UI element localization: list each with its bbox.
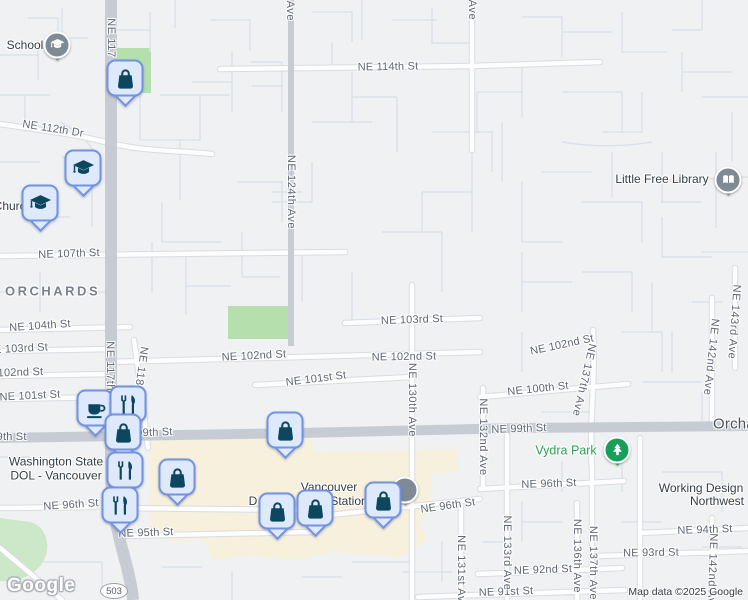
route-503-badge: 503 <box>100 583 128 599</box>
map-canvas[interactable]: NE 114th StNE 112th DrNE 107th StNE 104t… <box>0 0 748 600</box>
google-logo[interactable]: Google <box>7 575 75 597</box>
map-chrome-layer: 503 Google Map data ©2025 Google <box>0 0 748 600</box>
map-attribution: Map data ©2025 Google <box>628 586 743 598</box>
